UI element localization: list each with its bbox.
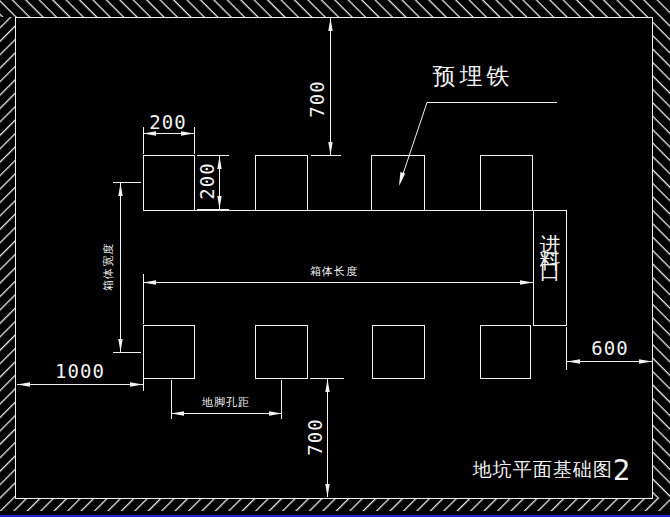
- hatched-wall-border: [0, 0, 670, 511]
- embedded-plate: [144, 156, 195, 211]
- dim-arrow: [217, 156, 221, 169]
- dim-left-clearance-1000: [17, 379, 144, 391]
- embedded-plate: [256, 156, 308, 211]
- feed-inlet-callout: 进料口: [539, 217, 560, 265]
- wall-hatch-right: [652, 17, 670, 498]
- embedded-plates-bottom-row: [144, 326, 531, 379]
- embedded-plate: [481, 326, 531, 379]
- drawing-linework: [0, 0, 670, 517]
- dim-box-width: [113, 183, 141, 353]
- wall-hatch-top: [0, 0, 670, 17]
- embedded-plate: [481, 156, 533, 211]
- dim-arrow: [325, 379, 329, 392]
- dim-box-length: [143, 274, 533, 324]
- dim-arrow: [118, 183, 122, 196]
- leader-line: [400, 103, 427, 184]
- drawing-figure-number: 2: [613, 453, 631, 487]
- dim-plate-width-200: [143, 127, 195, 154]
- drawing-title: 地坑平面基础图2: [473, 453, 631, 487]
- dim-anchor-hole-spacing: [171, 380, 282, 419]
- dim-arrow: [143, 280, 156, 284]
- wall-hatch-left: [0, 17, 15, 498]
- dim-top-clearance-700: [311, 18, 341, 156]
- dim-arrow: [328, 18, 332, 31]
- dim-arrow: [130, 382, 143, 386]
- dim-arrow: [217, 196, 221, 209]
- dim-arrow: [639, 359, 652, 363]
- dim-arrow: [143, 131, 156, 135]
- dim-arrow: [17, 382, 30, 386]
- dim-arrow: [118, 339, 122, 352]
- pit-structure: [143, 211, 567, 326]
- dim-right-clearance-600: [567, 327, 653, 370]
- wall-hatch-bottom: [0, 498, 670, 511]
- dim-arrow: [269, 411, 282, 415]
- dim-plate-height-200: [197, 156, 229, 210]
- dim-arrow: [171, 411, 184, 415]
- dim-arrow: [325, 484, 329, 497]
- cad-drawing-canvas: 200 200 700 箱体宽度 箱体长度 1000 地脚孔距 700 600 …: [0, 0, 670, 517]
- dim-arrow: [181, 131, 194, 135]
- embedded-iron-leader: [399, 103, 557, 187]
- embedded-plate: [144, 326, 195, 379]
- drawing-title-text: 地坑平面基础图: [473, 458, 613, 480]
- leader-arrow: [399, 172, 405, 186]
- dim-arrow: [567, 359, 580, 363]
- embedded-plates-top-row: [144, 156, 533, 211]
- dim-arrow: [328, 142, 332, 155]
- embedded-plate: [256, 326, 308, 379]
- embedded-plate: [373, 326, 425, 379]
- dim-arrow: [520, 280, 533, 284]
- embedded-plate: [372, 156, 425, 211]
- dim-bottom-clearance-700: [310, 379, 344, 498]
